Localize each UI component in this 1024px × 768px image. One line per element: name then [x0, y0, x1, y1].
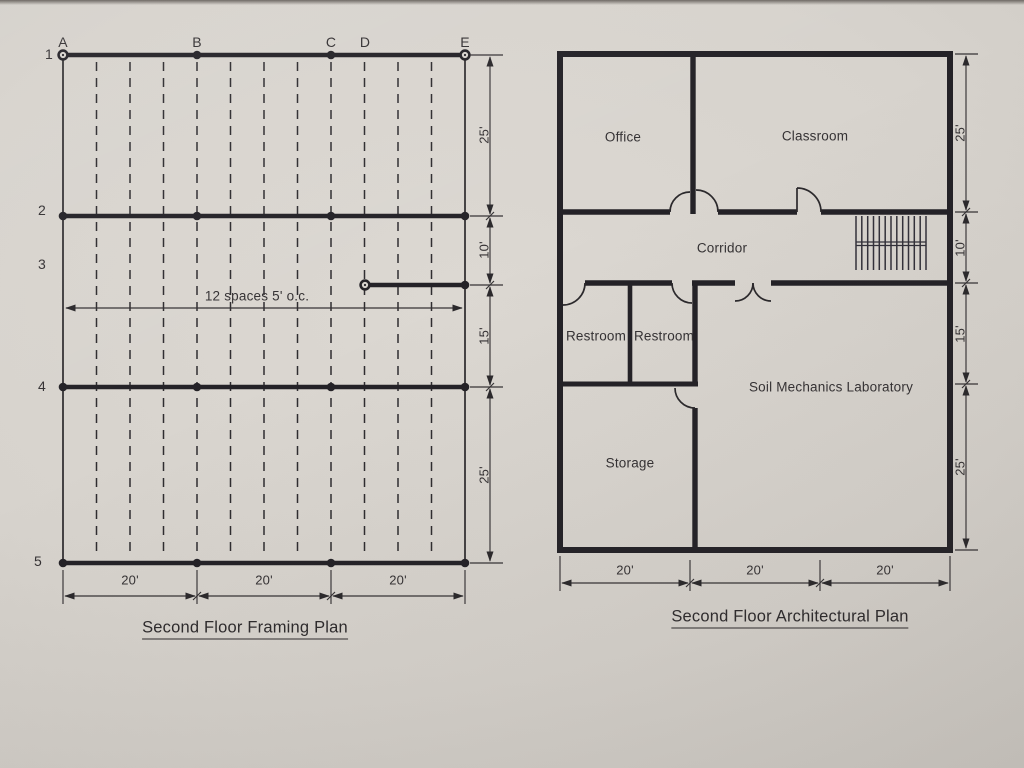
arch-dim-bottom-20c: 20'	[876, 563, 894, 578]
framing-row-label-4: 4	[38, 378, 46, 394]
arch-plan-interior-walls	[560, 54, 950, 550]
arch-dim-right-10: 10'	[953, 239, 968, 257]
classroom-door2-arc	[797, 188, 821, 212]
room-label-restroom-right: Restroom	[634, 329, 694, 344]
architectural-plan-title: Second Floor Architectural Plan	[671, 608, 908, 629]
room-label-storage: Storage	[606, 456, 655, 471]
framing-column-label-a: A	[58, 34, 68, 50]
framing-row-label-5: 5	[34, 553, 42, 569]
lab-double-door-left-arc	[735, 283, 753, 301]
framing-dim-bottom-20c: 20'	[389, 573, 407, 588]
arch-dim-right-15: 15'	[953, 325, 968, 343]
framing-row-label-1: 1	[45, 46, 53, 62]
framing-column-label-c: C	[326, 34, 336, 50]
arch-dim-right-25b: 25'	[953, 458, 968, 476]
classroom-door-arc	[696, 190, 718, 212]
framing-plan-joist-lines	[97, 62, 432, 556]
room-label-classroom: Classroom	[782, 129, 848, 144]
photographed-drawing-sheet: A B C D E 1 2 3 4 5 12 spaces 5' o.c. 25…	[0, 0, 1024, 768]
arch-dim-right-25a: 25'	[953, 124, 968, 142]
arch-plan-outer-walls	[560, 54, 950, 550]
storage-door-arc	[675, 388, 695, 408]
framing-row-label-3: 3	[38, 256, 46, 272]
restroom-right-door-arc	[672, 283, 692, 303]
framing-plan-dimension-lines	[63, 55, 503, 604]
framing-dim-right-10: 10'	[477, 241, 492, 259]
arch-dim-bottom-20a: 20'	[616, 563, 634, 578]
room-label-lab: Soil Mechanics Laboratory	[749, 380, 913, 395]
framing-plan-title: Second Floor Framing Plan	[142, 619, 348, 640]
framing-dim-right-15: 15'	[477, 327, 492, 345]
room-label-restroom-left: Restroom	[566, 329, 626, 344]
joist-spacing-note: 12 spaces 5' o.c.	[205, 289, 309, 304]
restroom-left-door-arc	[563, 283, 585, 305]
framing-column-label-e: E	[460, 34, 470, 50]
office-door-arc	[670, 192, 690, 212]
framing-dim-right-25a: 25'	[477, 126, 492, 144]
framing-column-label-d: D	[360, 34, 370, 50]
framing-column-label-b: B	[192, 34, 202, 50]
framing-dim-bottom-20a: 20'	[121, 573, 139, 588]
room-label-corridor: Corridor	[697, 241, 747, 256]
arch-dim-bottom-20b: 20'	[746, 563, 764, 578]
room-label-office: Office	[605, 130, 641, 145]
framing-row-label-2: 2	[38, 202, 46, 218]
framing-dim-right-25b: 25'	[477, 466, 492, 484]
lab-double-door-right-arc	[753, 283, 771, 301]
arch-plan-stairs	[856, 216, 926, 270]
arch-plan-door-swings	[563, 188, 821, 408]
framing-dim-bottom-20b: 20'	[255, 573, 273, 588]
